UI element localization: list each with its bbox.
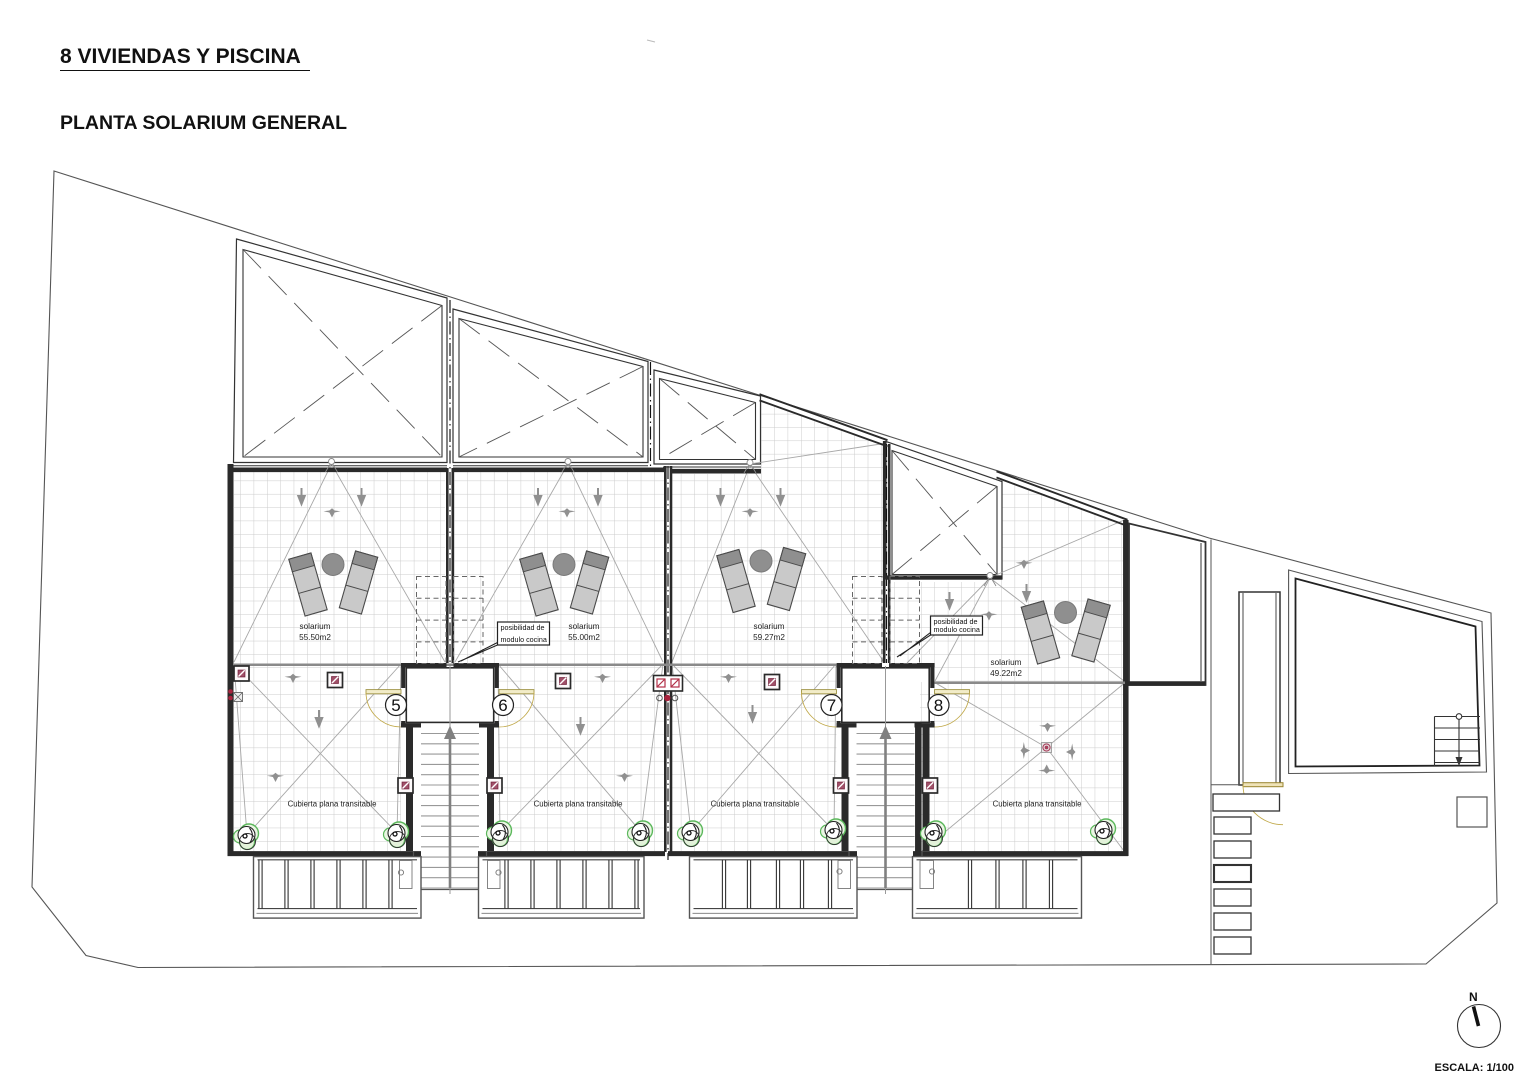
svg-text:modulo cocina: modulo cocina (934, 625, 980, 634)
svg-text:PLANTA SOLARIUM GENERAL: PLANTA SOLARIUM GENERAL (60, 112, 347, 134)
svg-text:modulo cocina: modulo cocina (501, 635, 547, 644)
svg-text:59.27m2: 59.27m2 (753, 633, 785, 642)
svg-text:Cubierta plana transitable: Cubierta plana transitable (711, 800, 800, 809)
svg-text:solarium: solarium (300, 622, 331, 631)
svg-text:49.22m2: 49.22m2 (990, 669, 1022, 678)
svg-text:8 VIVIENDAS Y PISCINA: 8 VIVIENDAS Y PISCINA (60, 45, 301, 68)
svg-text:solarium: solarium (569, 622, 600, 631)
svg-text:Cubierta plana transitable: Cubierta plana transitable (993, 800, 1082, 809)
svg-text:solarium: solarium (754, 622, 785, 631)
svg-text:Cubierta plana transitable: Cubierta plana transitable (534, 800, 623, 809)
svg-text:55.00m2: 55.00m2 (568, 633, 600, 642)
svg-text:Cubierta plana transitable: Cubierta plana transitable (288, 800, 377, 809)
svg-text:8: 8 (934, 696, 943, 715)
svg-text:5: 5 (391, 696, 400, 715)
svg-text:55.50m2: 55.50m2 (299, 633, 331, 642)
svg-text:solarium: solarium (991, 658, 1022, 667)
svg-text:6: 6 (498, 696, 507, 715)
svg-text:N: N (1469, 990, 1478, 1004)
svg-text:ESCALA: 1/100: ESCALA: 1/100 (1435, 1062, 1514, 1074)
svg-text:posibilidad de: posibilidad de (501, 623, 545, 632)
svg-text:7: 7 (827, 696, 836, 715)
